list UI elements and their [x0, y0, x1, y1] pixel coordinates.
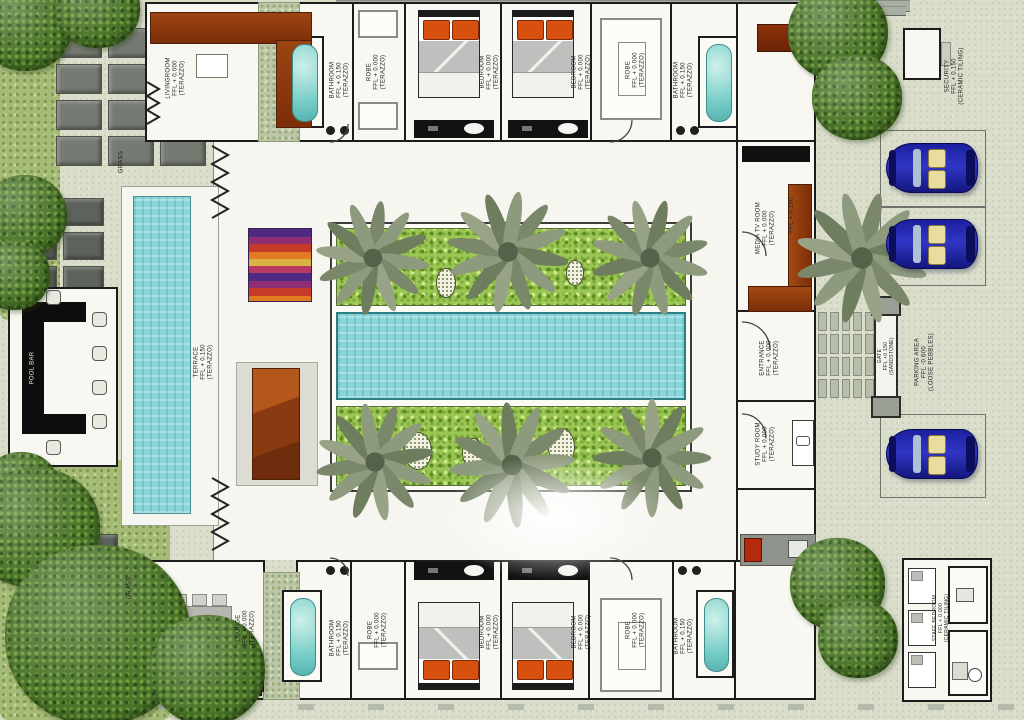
room-label-bedroom-bottom-2: BEDROOMFFL + 0.000(TERAZZO) [572, 614, 593, 650]
room-label-media: MEDIA TV ROOMFFL + 0.000(TERAZZO) [756, 202, 777, 254]
tree [818, 600, 898, 678]
label-driveway-level: FFL + 0.150 [789, 197, 796, 233]
room-label-robe-top-left: ROBEFFL + 0.000(TERAZZO) [367, 54, 388, 90]
label-parking: PARKING AREAFFL -0.600(LOOSE PEBBLES) [915, 333, 936, 391]
label-grass-south: GRASS [127, 577, 134, 600]
label-staff-bedroom: STAFF BEDROOMFFL + 0.000(CERAMIC TILING) [932, 594, 950, 643]
label-grass-north: GRASS [119, 151, 126, 174]
car [886, 216, 978, 272]
room-label-bedroom-top-1: BEDROOMFFL + 0.000(TERAZZO) [480, 54, 501, 90]
room-label-bathroom-bottom-left: BATHROOMFFL + 0.150(TERAZZO) [330, 620, 351, 657]
room-label-bathroom-top-right: BATHROOMFFL + 0.150(TERAZZO) [674, 62, 695, 99]
car [886, 426, 978, 482]
car-seat [928, 149, 946, 168]
label-security: SECURITYFFL + 0.150(CERAMIC TILING) [945, 47, 966, 104]
room-label-lounge: LOUNGEFFL + 0.000(TERAZZO) [236, 610, 257, 646]
floor-plan: LIVINGROOMFFL + 0.000(TERAZZO) BATHROOMF… [0, 0, 1024, 720]
room-label-robe-bottom-right: ROBEFFL + 0.000(TERAZZO) [626, 612, 647, 648]
label-gate: GATEFFL +0.150(SANDSTONE) [877, 337, 895, 375]
room-label-bathroom-top-left: BATHROOMFFL + 0.150(TERAZZO) [330, 62, 351, 99]
car [886, 140, 978, 196]
room-label-bedroom-top-2: BEDROOMFFL + 0.000(TERAZZO) [572, 54, 593, 90]
room-label-robe-bottom-left: ROBEFFL + 0.000(TERAZZO) [368, 612, 389, 648]
room-label-entrance: ENTRANCEFFL + 0.000(TERAZZO) [760, 340, 781, 376]
room-label-robe-top-right: ROBEFFL + 0.000(TERAZZO) [626, 52, 647, 88]
room-label-bedroom-bottom-1: BEDROOMFFL + 0.000(TERAZZO) [480, 614, 501, 650]
label-terrace: TERRACEFFL + 0.150(TERAZZO) [194, 344, 215, 380]
tree [812, 55, 902, 140]
label-pool-bar: POOL BAR [30, 352, 37, 385]
windshield [913, 149, 921, 187]
room-label-livingroom: LIVINGROOMFFL + 0.000(TERAZZO) [166, 57, 187, 98]
room-label-bathroom-bottom-right: BATHROOMFFL + 0.150(TERAZZO) [674, 618, 695, 655]
room-label-study: STUDY ROOMFFL + 0.000(TERAZZO) [756, 422, 777, 466]
car-seat [928, 170, 946, 189]
light-overexposure [440, 455, 665, 580]
